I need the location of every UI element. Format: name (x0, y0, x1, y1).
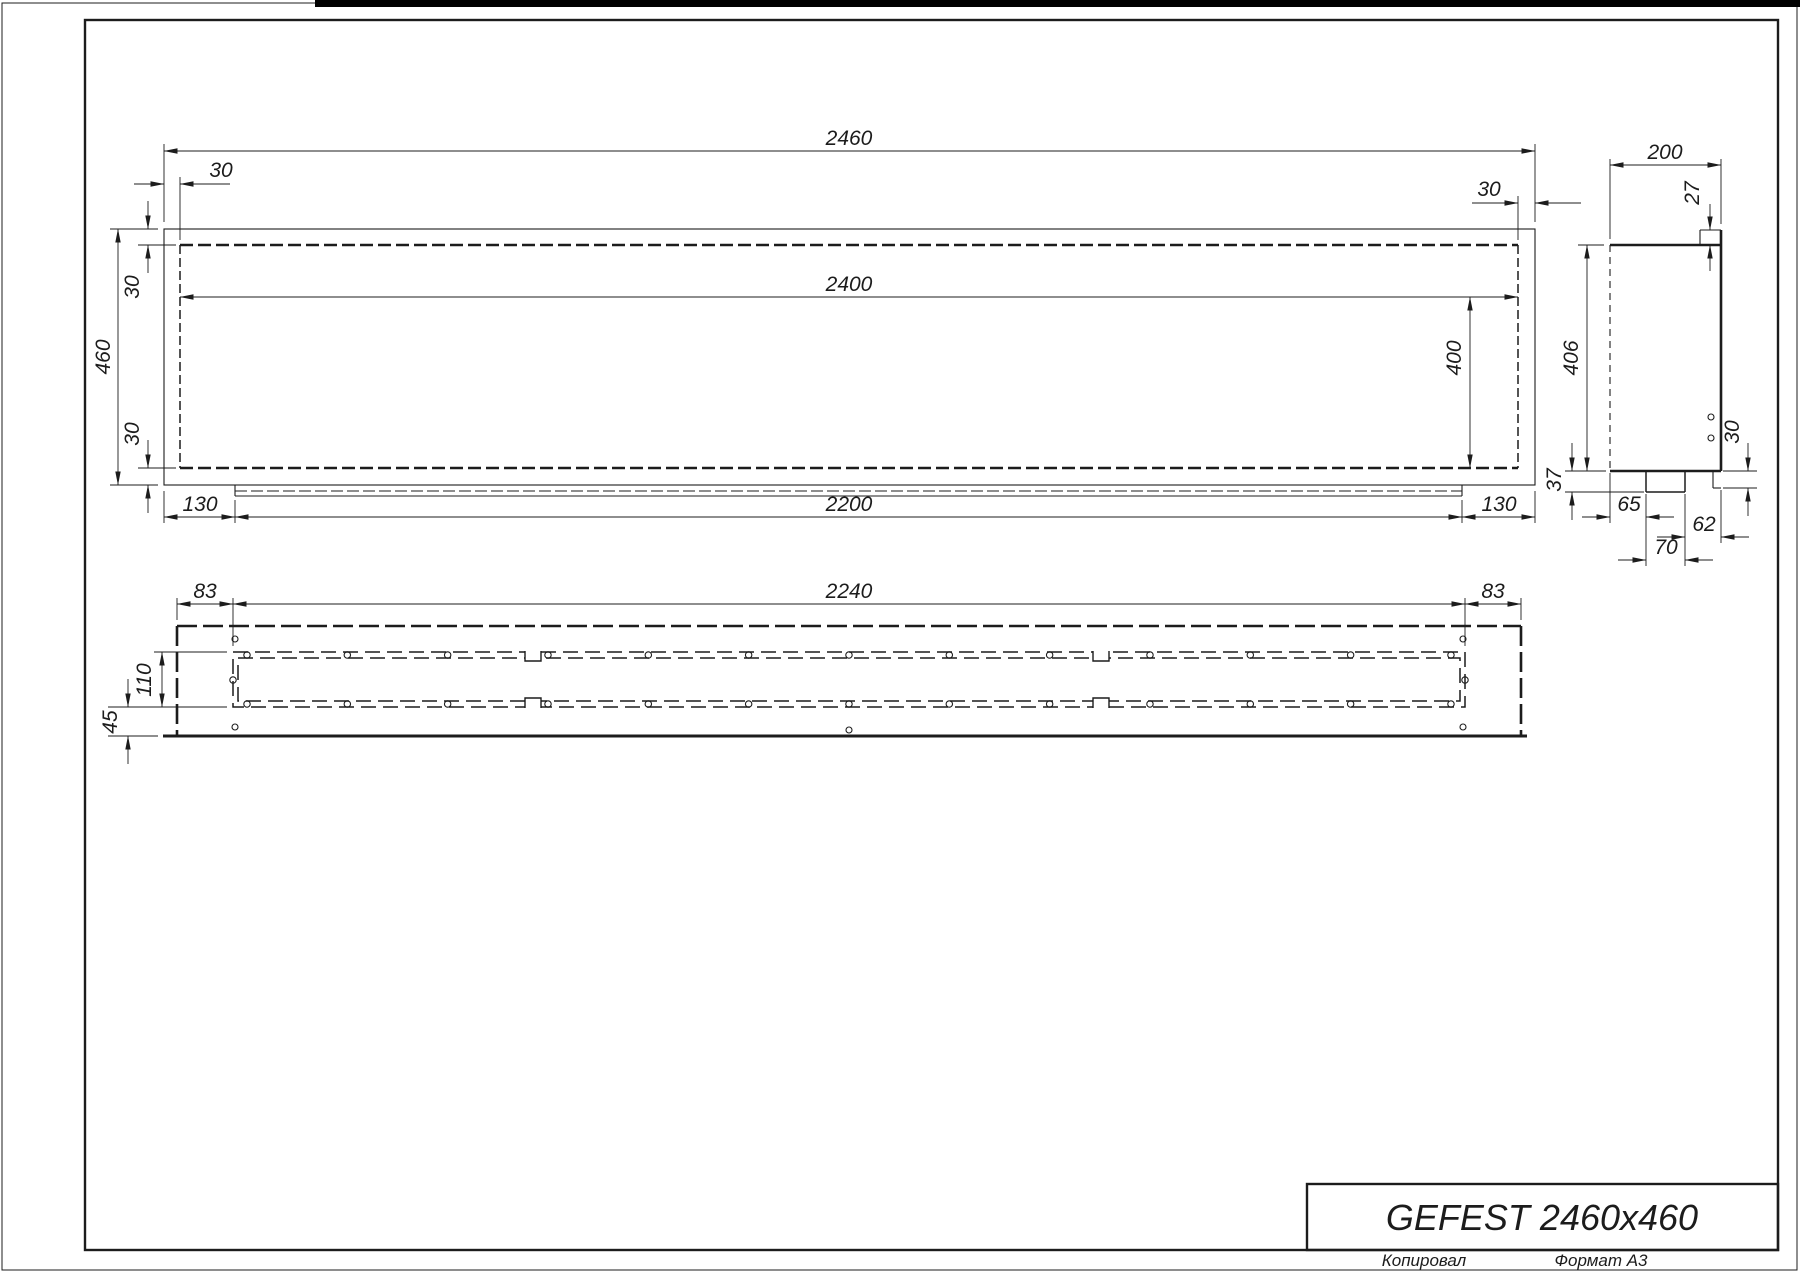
dim-bottom-slot-width: 110 (133, 663, 156, 697)
dim-side-body-height: 406 (1560, 340, 1583, 375)
dim-front-lip-left-offset: 130 (182, 493, 217, 516)
dim-bottom-slot-length: 2240 (825, 580, 873, 603)
dim-side-depth: 200 (1646, 141, 1682, 164)
burner-clip (525, 651, 541, 661)
burner-hole (1247, 701, 1253, 707)
front-view (164, 229, 1535, 496)
burner-holes (230, 636, 1468, 733)
side-hole-upper (1708, 414, 1714, 420)
drawing-canvas: 2460 30 30 2400 460 30 30 400 130 2200 1… (0, 0, 1800, 1273)
burner-hole (232, 724, 238, 730)
side-view (1610, 230, 1721, 492)
dim-front-inner-height: 400 (1443, 340, 1466, 375)
burner-slot-outer (233, 652, 1465, 707)
dim-side-edge-drop: 30 (1721, 420, 1744, 444)
dim-front-left-bottom-inset: 30 (121, 422, 144, 446)
dim-bottom-edge-offset: 45 (99, 710, 122, 734)
footer-format-label: Формат А3 (1554, 1251, 1648, 1270)
dim-front-total-width: 2460 (825, 127, 873, 150)
burner-hole (1147, 652, 1153, 658)
burner-hole (244, 652, 250, 658)
burner-hole (1046, 701, 1052, 707)
burner-hole (344, 652, 350, 658)
burner-hole (846, 701, 852, 707)
dim-front-lip-length: 2200 (825, 493, 873, 516)
burner-hole (1247, 652, 1253, 658)
burner-hole (645, 652, 651, 658)
title-block: GEFEST 2460x460 Копировал Формат А3 (1307, 1184, 1778, 1270)
dim-front-left-top-inset: 30 (121, 275, 144, 299)
burner-clip (1093, 651, 1109, 661)
burner-slot-inner (238, 658, 1460, 701)
burner-clip (1093, 698, 1109, 708)
burner-hole (1347, 652, 1353, 658)
burner-hole (846, 652, 852, 658)
top-scan-bar (315, 0, 1800, 7)
dim-front-total-height: 460 (92, 339, 115, 374)
burner-hole (1147, 701, 1153, 707)
burner-hole (946, 701, 952, 707)
burner-clips (525, 651, 1109, 708)
footer-copied-label: Копировал (1382, 1251, 1467, 1270)
page-frame (2, 0, 1800, 1270)
side-hole-lower (1708, 435, 1714, 441)
dim-bottom-right-margin: 83 (1481, 580, 1505, 603)
paper-edge (2, 3, 1797, 1270)
drawing-title: GEFEST 2460x460 (1386, 1197, 1698, 1238)
front-outer-outline (164, 229, 1535, 485)
dim-side-pipe-to-edge: 62 (1692, 513, 1716, 536)
burner-hole (244, 701, 250, 707)
dim-front-lip-right-offset: 130 (1481, 493, 1516, 516)
burner-hole (745, 652, 751, 658)
dim-front-inner-width: 2400 (825, 273, 873, 296)
dim-side-flange-height: 27 (1681, 180, 1704, 206)
dim-front-top-left-inset: 30 (209, 159, 233, 182)
burner-clip (525, 698, 541, 708)
drawing-sheet: 2460 30 30 2400 460 30 30 400 130 2200 1… (0, 0, 1800, 1273)
dim-side-pipe-width: 70 (1654, 536, 1678, 559)
burner-hole (745, 701, 751, 707)
burner-hole (444, 652, 450, 658)
dim-side-pipe-offset: 65 (1617, 493, 1641, 516)
drawing-frame (85, 20, 1778, 1250)
dim-front-top-right-inset: 30 (1477, 178, 1501, 201)
burner-hole (344, 701, 350, 707)
burner-hole (1046, 652, 1052, 658)
dim-bottom-left-margin: 83 (193, 580, 217, 603)
burner-hole (846, 727, 852, 733)
side-view-dimensions: 200 27 406 37 30 65 62 70 (1543, 141, 1757, 566)
burner-hole (645, 701, 651, 707)
burner-hole (545, 652, 551, 658)
bottom-view (163, 626, 1527, 736)
front-view-dimensions: 2460 30 30 2400 460 30 30 400 130 2200 1… (92, 127, 1581, 523)
burner-hole (1448, 652, 1454, 658)
burner-hole (1347, 701, 1353, 707)
burner-hole (444, 701, 450, 707)
burner-hole (946, 652, 952, 658)
burner-hole (1460, 724, 1466, 730)
burner-hole (1448, 701, 1454, 707)
burner-hole (545, 701, 551, 707)
dim-side-foot-height: 37 (1543, 467, 1566, 492)
